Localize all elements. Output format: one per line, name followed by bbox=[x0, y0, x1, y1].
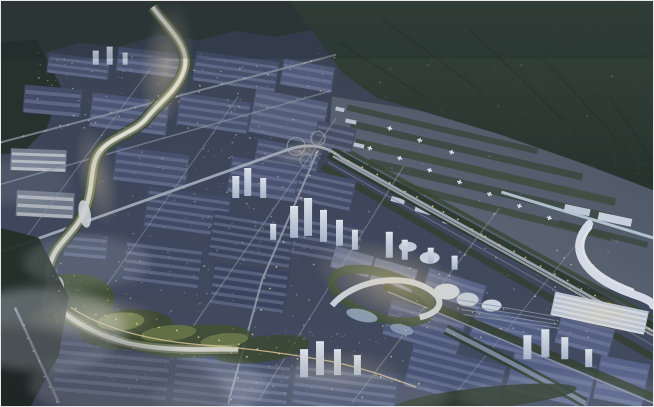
rendering-frame bbox=[0, 0, 654, 407]
aerial-city-rendering bbox=[1, 1, 653, 406]
